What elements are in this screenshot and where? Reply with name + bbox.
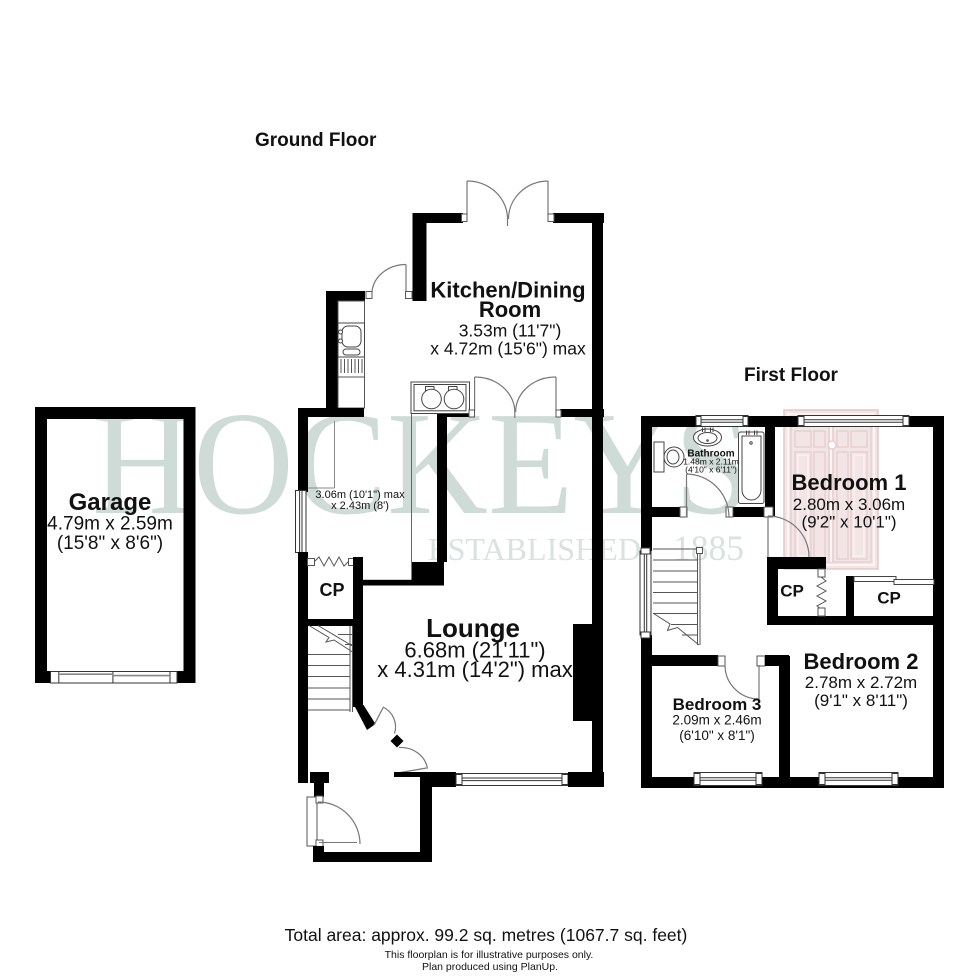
svg-text:(6'10" x 8'1"): (6'10" x 8'1"): [679, 728, 755, 743]
svg-text:(9'2" x 10'1"): (9'2" x 10'1"): [801, 513, 896, 532]
svg-text:Room: Room: [479, 297, 541, 322]
svg-text:(4'10" x 6'11"): (4'10" x 6'11"): [685, 465, 737, 475]
svg-text:1885: 1885: [673, 528, 744, 568]
svg-text:This floorplan is for illustra: This floorplan is for illustrative purpo…: [385, 949, 594, 961]
svg-text:Bedroom 1: Bedroom 1: [792, 470, 907, 495]
svg-text:Bedroom 3: Bedroom 3: [673, 695, 762, 714]
svg-text:(15'8" x 8'6"): (15'8" x 8'6"): [57, 533, 163, 554]
svg-text:4.79m x 2.59m: 4.79m x 2.59m: [47, 514, 173, 535]
svg-text:Garage: Garage: [69, 489, 152, 516]
svg-text:Total area: approx. 99.2 sq. m: Total area: approx. 99.2 sq. metres (106…: [285, 925, 688, 945]
svg-text:CP: CP: [319, 580, 344, 600]
svg-text:Bedroom 2: Bedroom 2: [804, 649, 919, 674]
svg-text:x 4.31m (14'2") max: x 4.31m (14'2") max: [377, 657, 572, 682]
svg-text:CP: CP: [877, 589, 901, 608]
svg-text:CP: CP: [780, 582, 804, 601]
svg-text:x 2.43m (8'): x 2.43m (8'): [331, 500, 389, 512]
svg-text:Ground Floor: Ground Floor: [255, 130, 377, 151]
svg-text:2.09m x 2.46m: 2.09m x 2.46m: [672, 713, 761, 728]
svg-text:3.53m (11'7"): 3.53m (11'7"): [459, 321, 562, 341]
svg-text:x 4.72m (15'6") max: x 4.72m (15'6") max: [430, 339, 586, 359]
svg-text:(9'1" x 8'11"): (9'1" x 8'11"): [814, 691, 908, 710]
svg-text:ESTABLISHED: ESTABLISHED: [428, 531, 641, 567]
svg-text:2.80m x 3.06m: 2.80m x 3.06m: [793, 495, 905, 514]
svg-text:Plan produced using PlanUp.: Plan produced using PlanUp.: [422, 961, 558, 973]
svg-text:2.78m x 2.72m: 2.78m x 2.72m: [805, 673, 917, 692]
svg-text:First Floor: First Floor: [744, 365, 839, 386]
